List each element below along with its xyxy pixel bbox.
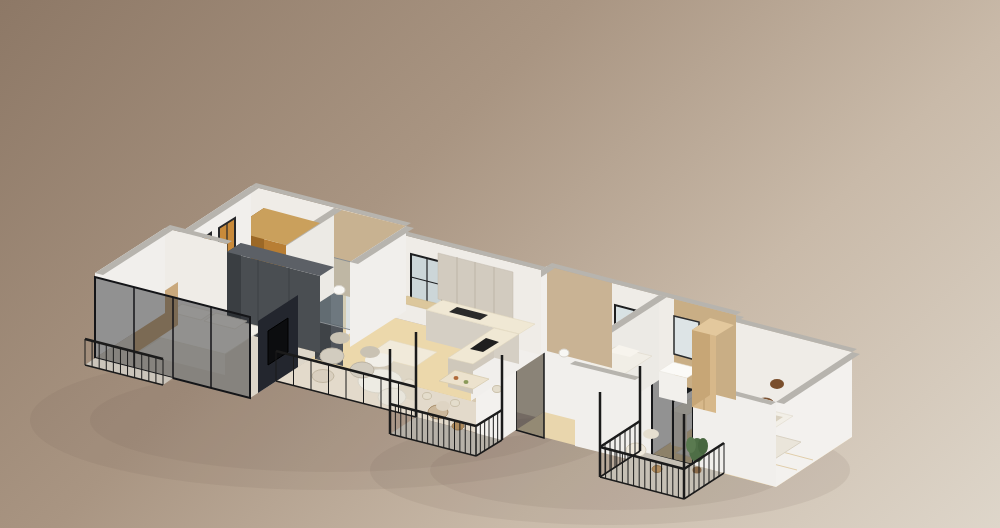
plant-foliage [686,437,696,453]
bathroom-b-marble-wall [547,266,612,368]
rattan-chair-cushion [436,401,450,411]
dining-chair [451,400,460,407]
side-table [652,466,662,473]
plant-foliage [698,438,708,454]
dining-chair [423,393,432,400]
balcony-armchair-back [643,429,659,439]
armchair-back [360,346,380,358]
table-dish [464,380,469,384]
toilet [333,286,345,295]
armchair-seat [320,348,344,364]
armchair-back [330,332,350,344]
floorplan-render [0,0,1000,528]
floorplan-stage [0,0,1000,528]
dining-chair [493,386,502,393]
coffee-table [312,370,334,383]
office-chair-back [770,379,784,389]
toilet [559,349,569,357]
table-dish [454,376,459,380]
